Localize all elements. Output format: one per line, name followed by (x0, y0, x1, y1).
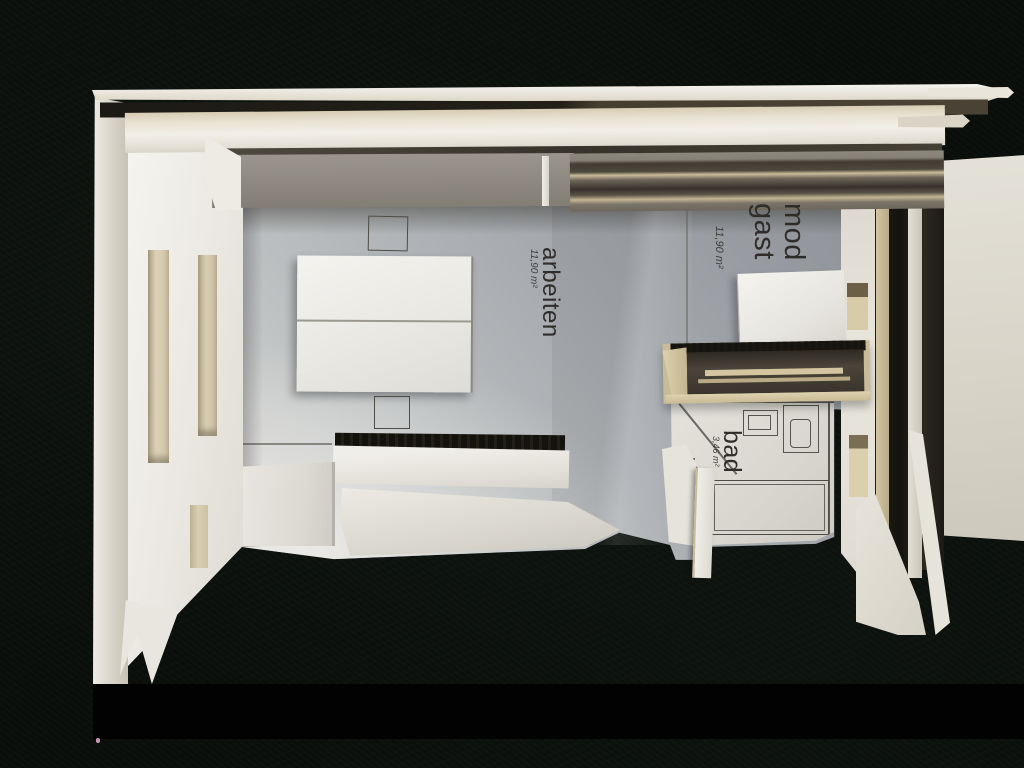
tray-slat (698, 376, 850, 383)
upper-wall-band-left (212, 153, 574, 208)
door-leaf (692, 468, 715, 579)
tray-interior (687, 349, 865, 394)
window-slot (198, 255, 217, 436)
sink-inner-outline (748, 415, 771, 430)
photo-architectural-model: arbeiten 11,90 m² mod gast 11,90 m² (0, 0, 1024, 768)
center-post (542, 156, 549, 206)
window-slot (190, 505, 208, 568)
shower-outline (710, 480, 829, 535)
slatted-tray (662, 340, 870, 404)
bathroom-name: bad (719, 430, 745, 482)
bed-block (297, 256, 474, 393)
side-table-outline-bottom (374, 396, 410, 429)
shower-inner-outline (714, 484, 825, 531)
guest-area-label: 11,90 m² (710, 226, 724, 288)
wall-column-block (233, 462, 335, 546)
tray-end-face (663, 347, 688, 399)
toilet-outline (783, 405, 819, 453)
room-divider-line (686, 208, 688, 348)
window-slot (847, 283, 868, 330)
guest-module-label: mod gast (748, 203, 808, 295)
window-slot (148, 250, 169, 463)
work-room-name: arbeiten (538, 247, 562, 365)
tray-slat (705, 367, 843, 375)
facade-panel (939, 155, 1024, 547)
pink-speck (96, 738, 100, 743)
work-room-label: arbeiten 11,90 m² (514, 247, 562, 365)
bathroom-area-label: 3,46 m² (708, 436, 720, 480)
toilet-bowl-outline (790, 419, 811, 448)
guest-label-line1: mod (778, 203, 808, 295)
pencil-line (240, 443, 332, 445)
bed-divider-line (297, 320, 471, 323)
bathroom-area-text: 3,46 m² (711, 436, 720, 480)
side-table-outline-top (368, 216, 409, 252)
left-wall-outer-sliver (93, 94, 128, 710)
desk-front (333, 446, 570, 489)
sink-outline (743, 410, 778, 436)
roof-beam-right (928, 87, 1014, 98)
guest-label-line2: gast (749, 203, 779, 295)
guest-area-text: 11,90 m² (713, 226, 724, 288)
window-slot (849, 435, 868, 497)
bottom-black-bar (93, 684, 1024, 739)
work-room-area: 11,90 m² (527, 249, 537, 365)
left-wall-tip (120, 600, 178, 684)
